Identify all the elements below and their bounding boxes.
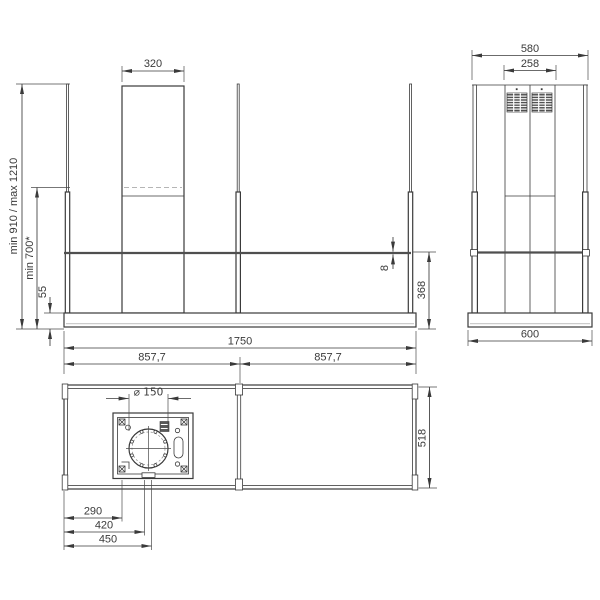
rod-wire [410, 84, 412, 192]
canopy-side [468, 313, 592, 327]
dim-label-857-right: 857,7 [314, 352, 342, 364]
dim-side-chimney-width: 258 [504, 58, 556, 80]
dim-canopy-height: 55 [37, 286, 64, 346]
dim-label-320: 320 [144, 58, 162, 70]
dim-duct-offsets: 290 420 450 [64, 480, 152, 550]
dim-label-420: 420 [95, 520, 113, 532]
canopy-body [64, 313, 416, 327]
dim-label-height-range: min 910 / max 1210 [8, 158, 20, 255]
dim-label-368: 368 [416, 281, 428, 299]
dim-side-depth: 600 [468, 329, 592, 347]
dim-label-580: 580 [521, 43, 539, 55]
dim-label-1750: 1750 [228, 336, 252, 348]
dim-min-height: min 700* [24, 188, 70, 330]
dim-label-290: 290 [84, 506, 102, 518]
dim-plan-depth: 518 [417, 387, 438, 488]
technical-drawing: 320 min 910 / max 1210 min 700* 55 8 [0, 0, 600, 600]
chimney-side [505, 85, 555, 313]
vent-grille-left [507, 93, 527, 112]
dim-label-450: 450 [99, 534, 117, 546]
glass-clip-left [471, 250, 478, 256]
cable-clamp [142, 473, 155, 478]
plan-view: ⌀ 150 518 290 420 450 [62, 384, 437, 550]
suspension-rods-front [65, 84, 412, 313]
dim-label-duct: ⌀ 150 [134, 387, 164, 399]
screw-dot [541, 88, 543, 90]
chimney-front [122, 86, 184, 313]
drawing-sheet: 320 min 910 / max 1210 min 700* 55 8 [0, 0, 600, 600]
mount-hole-bottom [175, 462, 179, 466]
mount-hole-left [126, 425, 131, 430]
dim-label-258: 258 [521, 58, 539, 70]
dim-total-width: 1750 857,7 857,7 [64, 331, 416, 383]
rod-wire [237, 84, 239, 192]
dim-label-518: 518 [417, 429, 429, 447]
dim-label-600: 600 [521, 329, 539, 341]
glass-clip-right [583, 250, 590, 256]
vent-grille-right [532, 93, 552, 112]
screw-dot [516, 88, 518, 90]
dim-label-min-700: min 700* [24, 236, 36, 280]
rod-wire [67, 84, 69, 192]
front-view: 320 min 910 / max 1210 min 700* 55 8 [8, 58, 436, 383]
dim-label-857-left: 857,7 [138, 352, 166, 364]
outlet-slot [174, 437, 183, 458]
dim-label-8: 8 [379, 265, 391, 271]
mount-hole-top [175, 428, 179, 432]
motor-unit [113, 413, 193, 479]
canopy-front [64, 313, 416, 327]
vent-grilles [507, 88, 552, 112]
dim-chimney-width: 320 [122, 58, 184, 82]
chimney-body [122, 86, 184, 313]
side-view: 580 258 600 [468, 43, 592, 346]
dim-label-55: 55 [37, 286, 49, 298]
